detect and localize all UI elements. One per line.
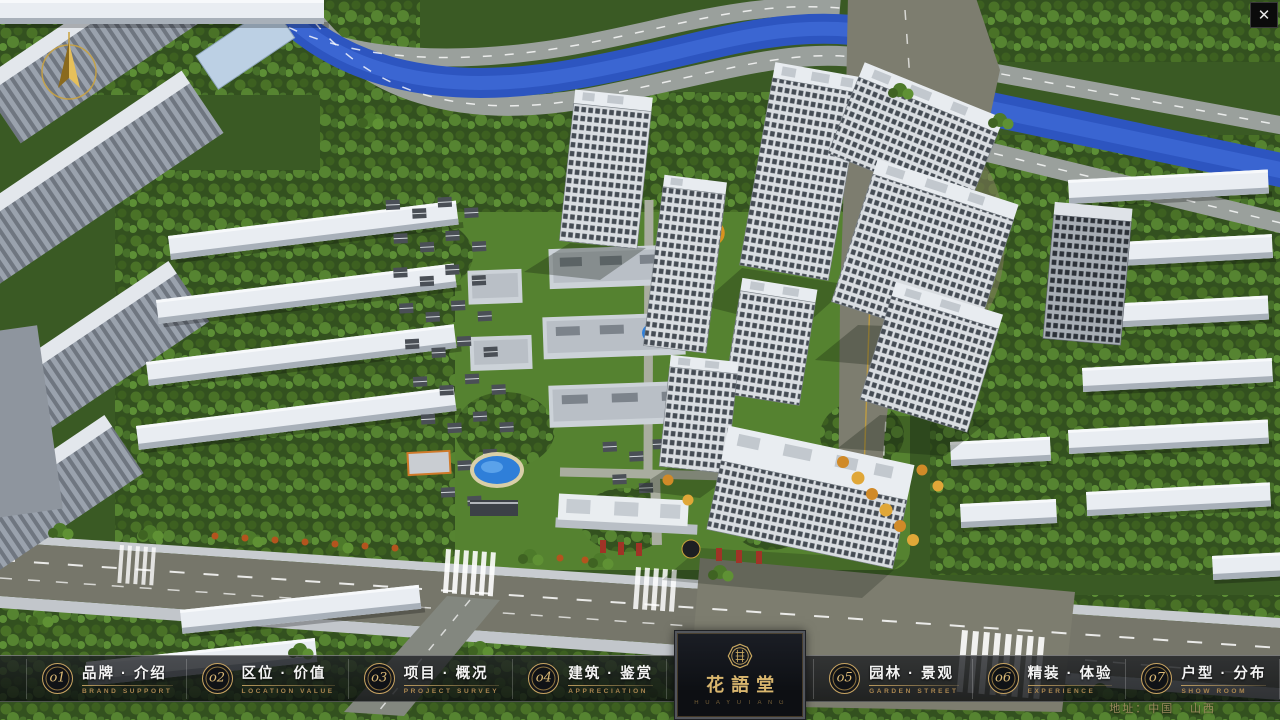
nav-label: 建筑 · 鉴赏	[568, 662, 653, 683]
gold-divider	[1181, 685, 1266, 686]
project-address: 地址：中国 · 山西	[1109, 700, 1216, 716]
nav-number-badge: o2	[202, 663, 233, 694]
nav-item-project-survey[interactable]: o3 项目 · 概况 PROJECT SURVEY	[348, 659, 513, 699]
close-icon: ✕	[1258, 8, 1271, 23]
nav-item-architecture[interactable]: o4 建筑 · 鉴赏 APPRECIATION	[512, 659, 667, 699]
nav-caption: EXPERIENCE	[1028, 688, 1096, 695]
nav-number-badge: o6	[988, 663, 1019, 694]
nav-item-interior-experience[interactable]: o6 精装 · 体验 EXPERIENCE	[972, 659, 1126, 699]
gold-divider	[1028, 685, 1113, 686]
close-button[interactable]: ✕	[1250, 2, 1278, 28]
gold-divider	[82, 685, 173, 686]
gold-divider	[242, 685, 335, 686]
brand-seal-icon	[727, 643, 753, 669]
nav-number-badge: o1	[42, 663, 73, 694]
nav-label: 项目 · 概况	[404, 662, 489, 683]
nav-label: 精装 · 体验	[1028, 662, 1113, 683]
brand-tagline: H U A Y U T A N G	[694, 700, 786, 706]
nav-label: 园林 · 景观	[869, 662, 954, 683]
gold-divider	[404, 685, 500, 686]
nav-caption: GARDEN STREET	[869, 688, 958, 695]
bottom-nav: o1 品牌 · 介绍 BRAND SUPPORT o2 区位 · 价值 LOCA…	[0, 655, 1280, 702]
nav-caption: PROJECT SURVEY	[404, 688, 500, 695]
nav-item-location-value[interactable]: o2 区位 · 价值 LOCATION VALUE	[186, 659, 348, 699]
nav-label: 品牌 · 介绍	[82, 662, 167, 683]
gold-divider	[568, 685, 653, 686]
nav-number-badge: o3	[364, 663, 395, 694]
nav-number-badge: o4	[528, 663, 559, 694]
nav-number-badge: o7	[1141, 663, 1172, 694]
masterplan-render	[0, 0, 1280, 720]
gold-divider	[869, 685, 958, 686]
nav-label: 户型 · 分布	[1181, 662, 1266, 683]
sales-app-window: ✕ o1 品牌 · 介绍 BRAND SUPPORT o2 区位 · 价值 LO…	[0, 0, 1280, 720]
nav-item-garden-landscape[interactable]: o5 园林 · 景观 GARDEN STREET	[813, 659, 971, 699]
nav-caption: BRAND SUPPORT	[82, 688, 173, 695]
nav-label: 区位 · 价值	[242, 662, 327, 683]
brand-name: 花語堂	[699, 671, 781, 697]
brand-logo-plaque[interactable]: 花語堂 H U A Y U T A N G	[675, 631, 805, 719]
nav-caption: SHOW ROOM	[1181, 688, 1247, 695]
nav-caption: APPRECIATION	[568, 688, 648, 695]
nav-item-brand-intro[interactable]: o1 品牌 · 介绍 BRAND SUPPORT	[26, 659, 186, 699]
nav-caption: LOCATION VALUE	[242, 688, 335, 695]
nav-item-floorplans[interactable]: o7 户型 · 分布 SHOW ROOM	[1125, 659, 1279, 699]
nav-number-badge: o5	[829, 663, 860, 694]
